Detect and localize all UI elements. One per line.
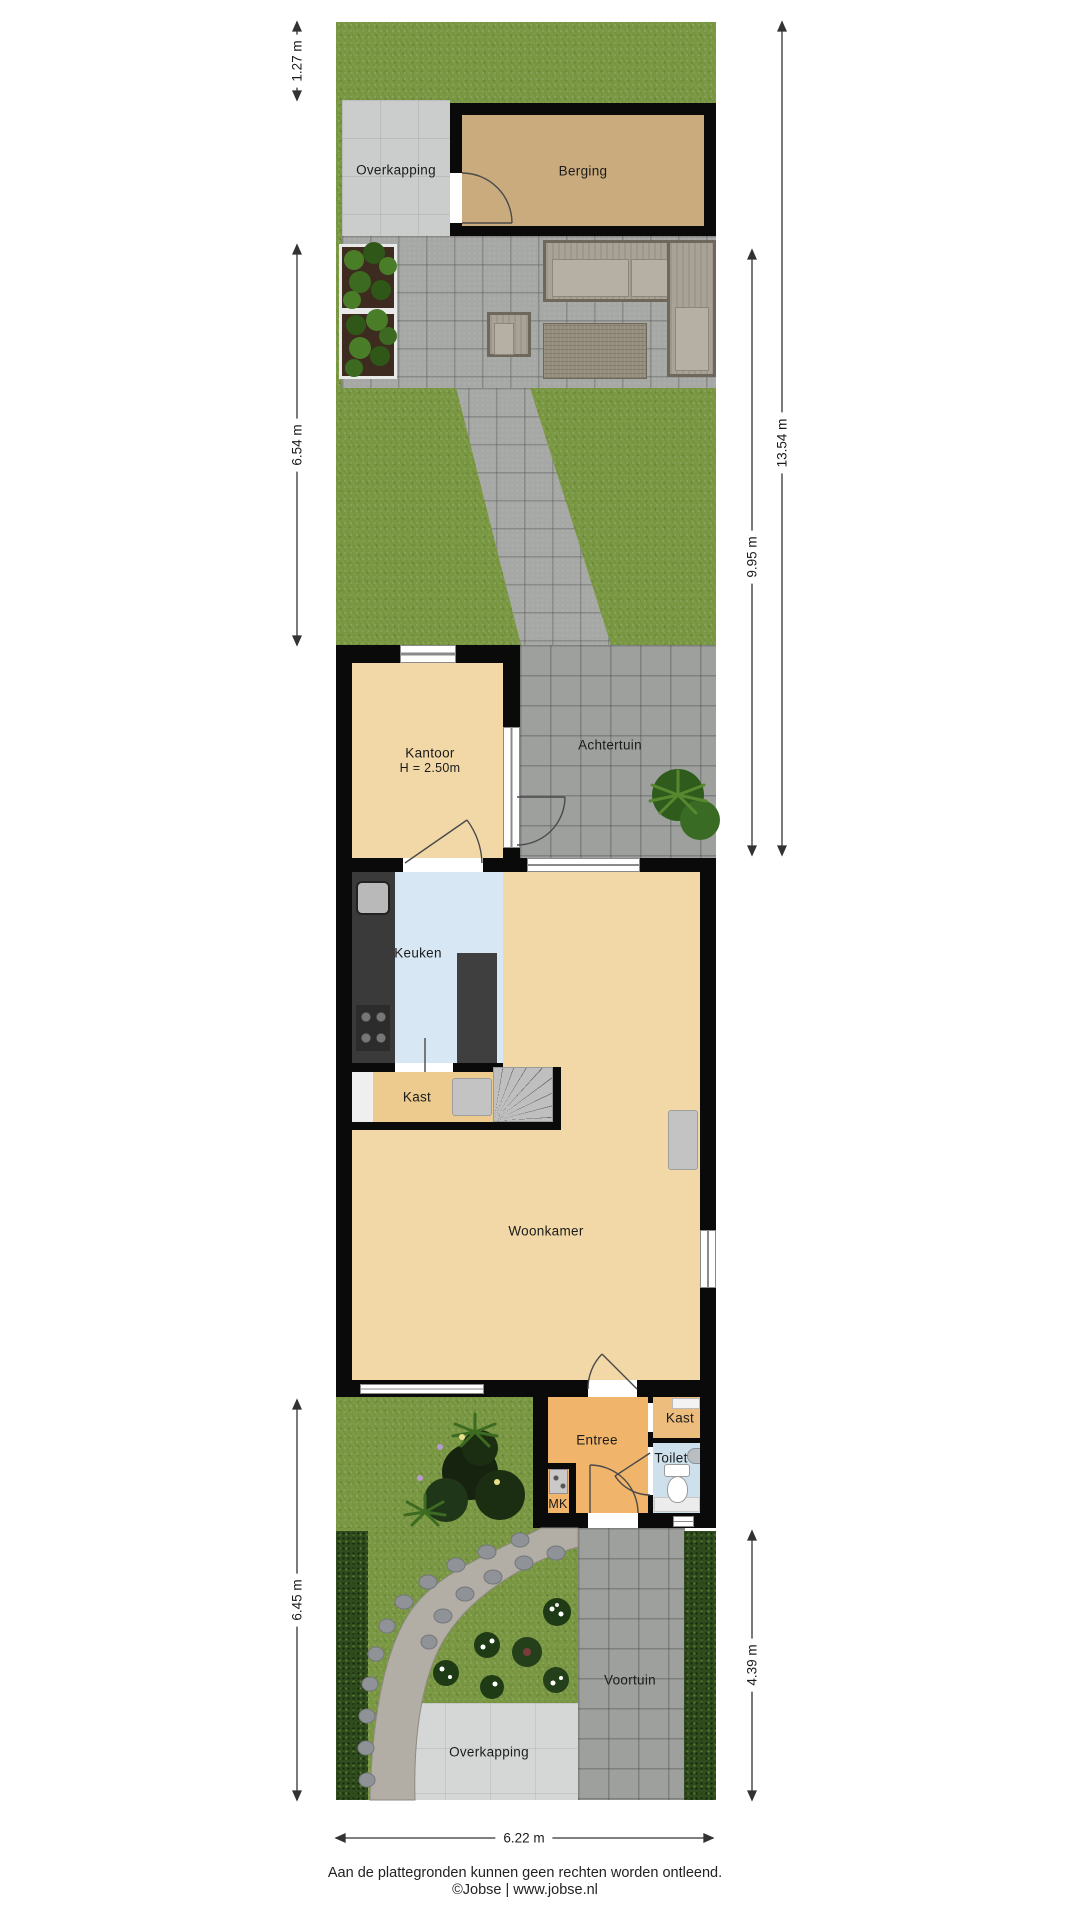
- woonkamer-radiator: [668, 1110, 698, 1170]
- kantoor-label: Kantoor: [405, 746, 454, 761]
- kitchen-sink: [356, 881, 390, 915]
- toilet-sink: [687, 1448, 701, 1464]
- kitchen-kast-opening: [395, 1063, 453, 1072]
- mk-meter-cabinet: [549, 1469, 568, 1494]
- entree-left-wall: [533, 1397, 548, 1528]
- kantoor-window: [400, 645, 456, 663]
- dim-total-right: 13.54 m: [773, 413, 792, 474]
- voortuin-grass-upper: [336, 1397, 533, 1528]
- kitchen-kast-wall-left: [352, 1063, 395, 1072]
- toilet-window: [673, 1516, 694, 1527]
- front-door-opening: [588, 1513, 638, 1528]
- entree-label: Entree: [576, 1433, 618, 1448]
- kast-mid-cabinet: [452, 1078, 492, 1116]
- entree-right-wall: [700, 1395, 716, 1528]
- house-top-wall: [336, 858, 716, 872]
- stairs: [493, 1067, 553, 1122]
- toilet-label: Toilet: [654, 1451, 687, 1466]
- dim-front-garden-left: 6.45 m: [288, 1573, 307, 1626]
- mk-right-wall: [569, 1463, 576, 1513]
- sliding-door: [527, 858, 640, 872]
- kitchen-cooktop: [356, 1005, 390, 1051]
- dim-back-garden-left: 6.54 m: [288, 418, 307, 471]
- dim-back-garden-right: 9.95 m: [743, 530, 762, 583]
- keuken-label: Keuken: [394, 946, 442, 961]
- mk-label: MK: [548, 1497, 567, 1511]
- garden-chair: [487, 312, 531, 357]
- footer-disclaimer: Aan de plattegronden kunnen geen rechten…: [328, 1865, 722, 1881]
- back-garden-top-grass-strip: [336, 22, 716, 103]
- kast-mid-bottom-wall: [352, 1122, 561, 1130]
- kantoor-door-opening: [403, 858, 483, 872]
- voortuin-label: Voortuin: [604, 1673, 656, 1688]
- woonkamer-front-window: [360, 1384, 484, 1394]
- garden-sofa-vertical: [667, 240, 716, 377]
- berging-label: Berging: [559, 164, 608, 179]
- hedge-left: [336, 1531, 368, 1800]
- berging-door-opening: [450, 173, 462, 223]
- toilet-bowl: [667, 1476, 688, 1503]
- overkapping-top-label: Overkapping: [356, 163, 436, 178]
- floorplan-canvas: Overkapping Berging Achtertuin Kantoor H…: [0, 0, 1080, 1920]
- kast-mid-recess: [352, 1072, 373, 1122]
- hedge-right: [684, 1531, 716, 1800]
- woonkamer-floor-left: [352, 1130, 503, 1380]
- kitchen-island: [457, 953, 497, 1063]
- voortuin-driveway: [578, 1528, 685, 1800]
- entree-floor: [548, 1397, 648, 1513]
- garden-rug: [543, 323, 647, 379]
- stairs-right-wall: [553, 1067, 561, 1130]
- planter-box-1: [339, 244, 397, 311]
- woonkamer-side-window: [700, 1230, 716, 1288]
- planter-box-2: [339, 311, 397, 379]
- dim-front-garden-right: 4.39 m: [743, 1638, 762, 1691]
- kast-mid-label: Kast: [403, 1090, 431, 1105]
- dim-width-bottom: 6.22 m: [495, 1831, 552, 1846]
- woonkamer-label: Woonkamer: [508, 1224, 583, 1239]
- kast-bottom-shelf: [672, 1398, 700, 1409]
- dim-top-strip: 1.27 m: [288, 34, 307, 87]
- entree-door-opening: [588, 1380, 637, 1397]
- achtertuin-label: Achtertuin: [578, 738, 642, 753]
- kast-bottom-label: Kast: [666, 1411, 694, 1426]
- house-right-wall: [700, 872, 716, 1395]
- footer-credit: ©Jobse | www.jobse.nl: [452, 1882, 598, 1898]
- kantoor-glass-door: [503, 727, 520, 848]
- overkapping-bottom-label: Overkapping: [449, 1745, 529, 1760]
- house-left-wall: [336, 872, 352, 1395]
- kantoor-height-label: H = 2.50m: [400, 761, 461, 775]
